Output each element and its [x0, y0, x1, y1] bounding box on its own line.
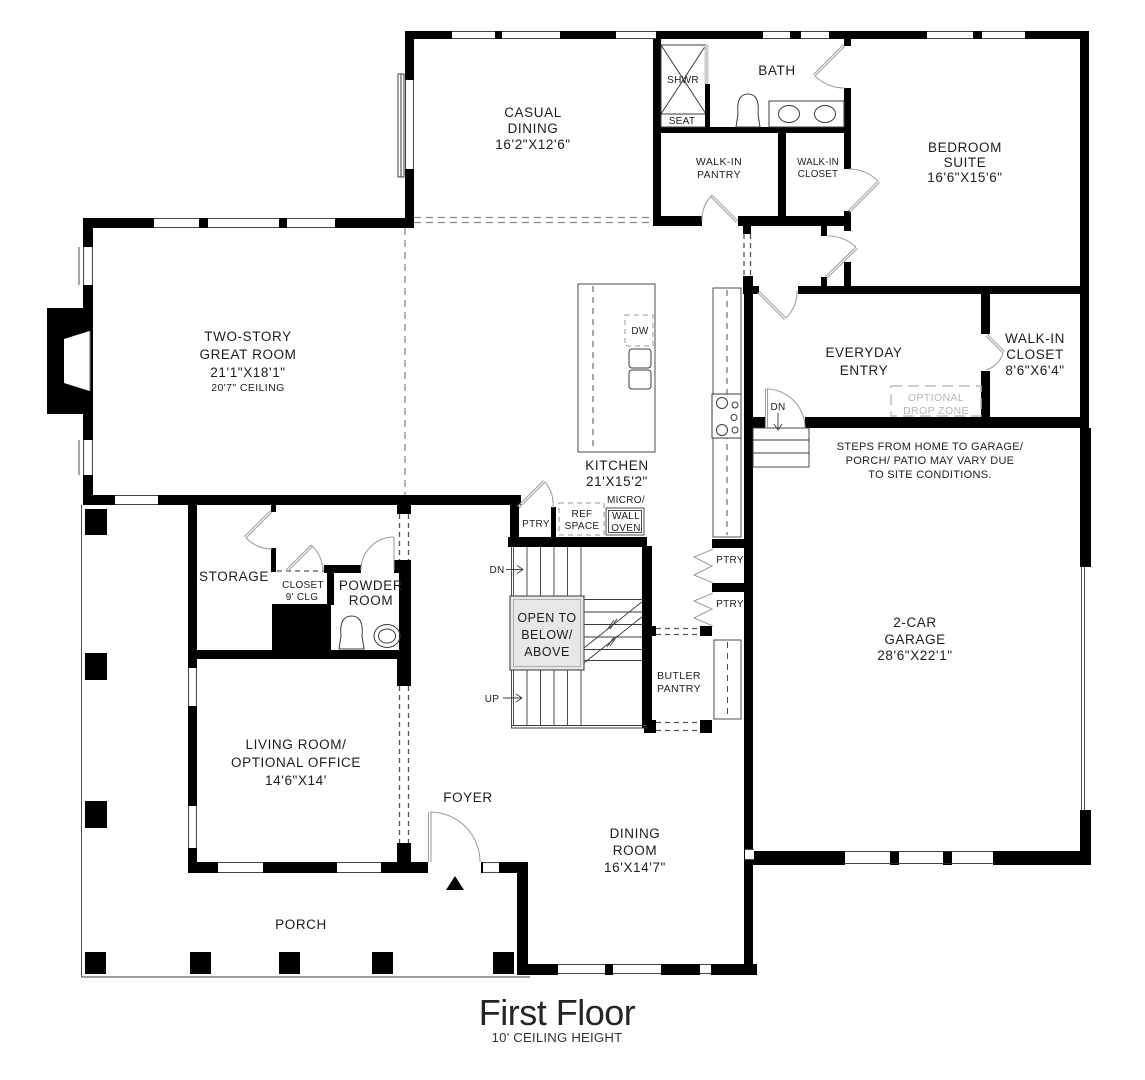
- svg-text:DW: DW: [631, 326, 649, 337]
- svg-text:CLOSET: CLOSET: [282, 580, 324, 591]
- svg-text:EVERYDAY: EVERYDAY: [825, 345, 902, 360]
- svg-text:21'X15'2": 21'X15'2": [586, 474, 648, 489]
- svg-text:TO SITE CONDITIONS.: TO SITE CONDITIONS.: [868, 469, 991, 481]
- svg-text:GARAGE: GARAGE: [884, 632, 945, 647]
- svg-text:PTRY: PTRY: [716, 599, 744, 610]
- svg-text:OPTIONAL: OPTIONAL: [908, 392, 964, 404]
- svg-text:21'1"X18'1": 21'1"X18'1": [210, 365, 285, 380]
- svg-text:KITCHEN: KITCHEN: [585, 458, 648, 473]
- svg-text:28'6"X22'1": 28'6"X22'1": [877, 648, 952, 663]
- svg-text:WALK-IN: WALK-IN: [1005, 331, 1065, 346]
- svg-text:SEAT: SEAT: [669, 116, 696, 127]
- svg-text:16'6"X15'6": 16'6"X15'6": [927, 170, 1002, 185]
- svg-text:8'6"X6'4": 8'6"X6'4": [1005, 363, 1064, 378]
- svg-text:DROP ZONE: DROP ZONE: [903, 405, 969, 417]
- svg-text:SPACE: SPACE: [565, 521, 600, 532]
- svg-text:SUITE: SUITE: [944, 155, 987, 170]
- svg-text:ROOM: ROOM: [349, 593, 393, 608]
- svg-text:20'7" CEILING: 20'7" CEILING: [211, 382, 284, 394]
- svg-text:ROOM: ROOM: [613, 843, 657, 858]
- svg-text:WALL: WALL: [612, 511, 640, 522]
- svg-text:DN: DN: [489, 565, 504, 576]
- svg-text:BEDROOM: BEDROOM: [928, 140, 1002, 155]
- svg-text:CLOSET: CLOSET: [1006, 347, 1064, 362]
- svg-text:DN: DN: [770, 402, 785, 413]
- svg-text:14'6"X14': 14'6"X14': [265, 773, 327, 788]
- svg-text:PTRY: PTRY: [522, 519, 550, 530]
- svg-text:9' CLG: 9' CLG: [286, 592, 319, 603]
- svg-text:10' CEILING HEIGHT: 10' CEILING HEIGHT: [492, 1030, 623, 1045]
- svg-text:POWDER: POWDER: [339, 578, 403, 593]
- svg-text:PORCH/ PATIO MAY VARY DUE: PORCH/ PATIO MAY VARY DUE: [846, 455, 1015, 467]
- svg-text:STEPS FROM HOME TO GARAGE/: STEPS FROM HOME TO GARAGE/: [837, 441, 1024, 453]
- svg-text:FOYER: FOYER: [443, 790, 493, 805]
- svg-text:CLOSET: CLOSET: [798, 169, 838, 180]
- svg-text:SHWR: SHWR: [667, 75, 699, 86]
- svg-text:WALK-IN: WALK-IN: [797, 157, 839, 168]
- svg-text:16'X14'7": 16'X14'7": [604, 860, 666, 875]
- svg-text:LIVING ROOM/: LIVING ROOM/: [246, 737, 347, 752]
- svg-text:PANTRY: PANTRY: [697, 169, 741, 181]
- svg-text:REF: REF: [572, 509, 593, 520]
- svg-text:PTRY: PTRY: [716, 555, 744, 566]
- svg-text:MICRO/: MICRO/: [607, 495, 645, 506]
- svg-text:CASUAL: CASUAL: [504, 105, 562, 120]
- svg-text:OPEN TO: OPEN TO: [517, 611, 576, 625]
- svg-text:WALK-IN: WALK-IN: [696, 156, 742, 168]
- svg-text:2-CAR: 2-CAR: [893, 615, 937, 630]
- svg-text:16'2"X12'6": 16'2"X12'6": [495, 137, 570, 152]
- svg-text:ABOVE: ABOVE: [524, 645, 570, 659]
- svg-text:STORAGE: STORAGE: [199, 569, 269, 584]
- svg-text:PORCH: PORCH: [275, 917, 327, 932]
- svg-text:BUTLER: BUTLER: [657, 670, 701, 682]
- svg-text:BATH: BATH: [758, 63, 795, 78]
- svg-text:DINING: DINING: [610, 826, 661, 841]
- svg-text:TWO-STORY: TWO-STORY: [204, 329, 291, 344]
- svg-text:First Floor: First Floor: [479, 992, 636, 1033]
- svg-text:PANTRY: PANTRY: [657, 683, 701, 695]
- svg-text:OVEN: OVEN: [611, 523, 641, 534]
- svg-text:OPTIONAL OFFICE: OPTIONAL OFFICE: [231, 755, 361, 770]
- svg-text:GREAT ROOM: GREAT ROOM: [199, 347, 296, 362]
- svg-text:DINING: DINING: [508, 121, 559, 136]
- svg-text:UP: UP: [485, 694, 500, 705]
- svg-text:BELOW/: BELOW/: [521, 628, 573, 642]
- svg-text:ENTRY: ENTRY: [840, 363, 889, 378]
